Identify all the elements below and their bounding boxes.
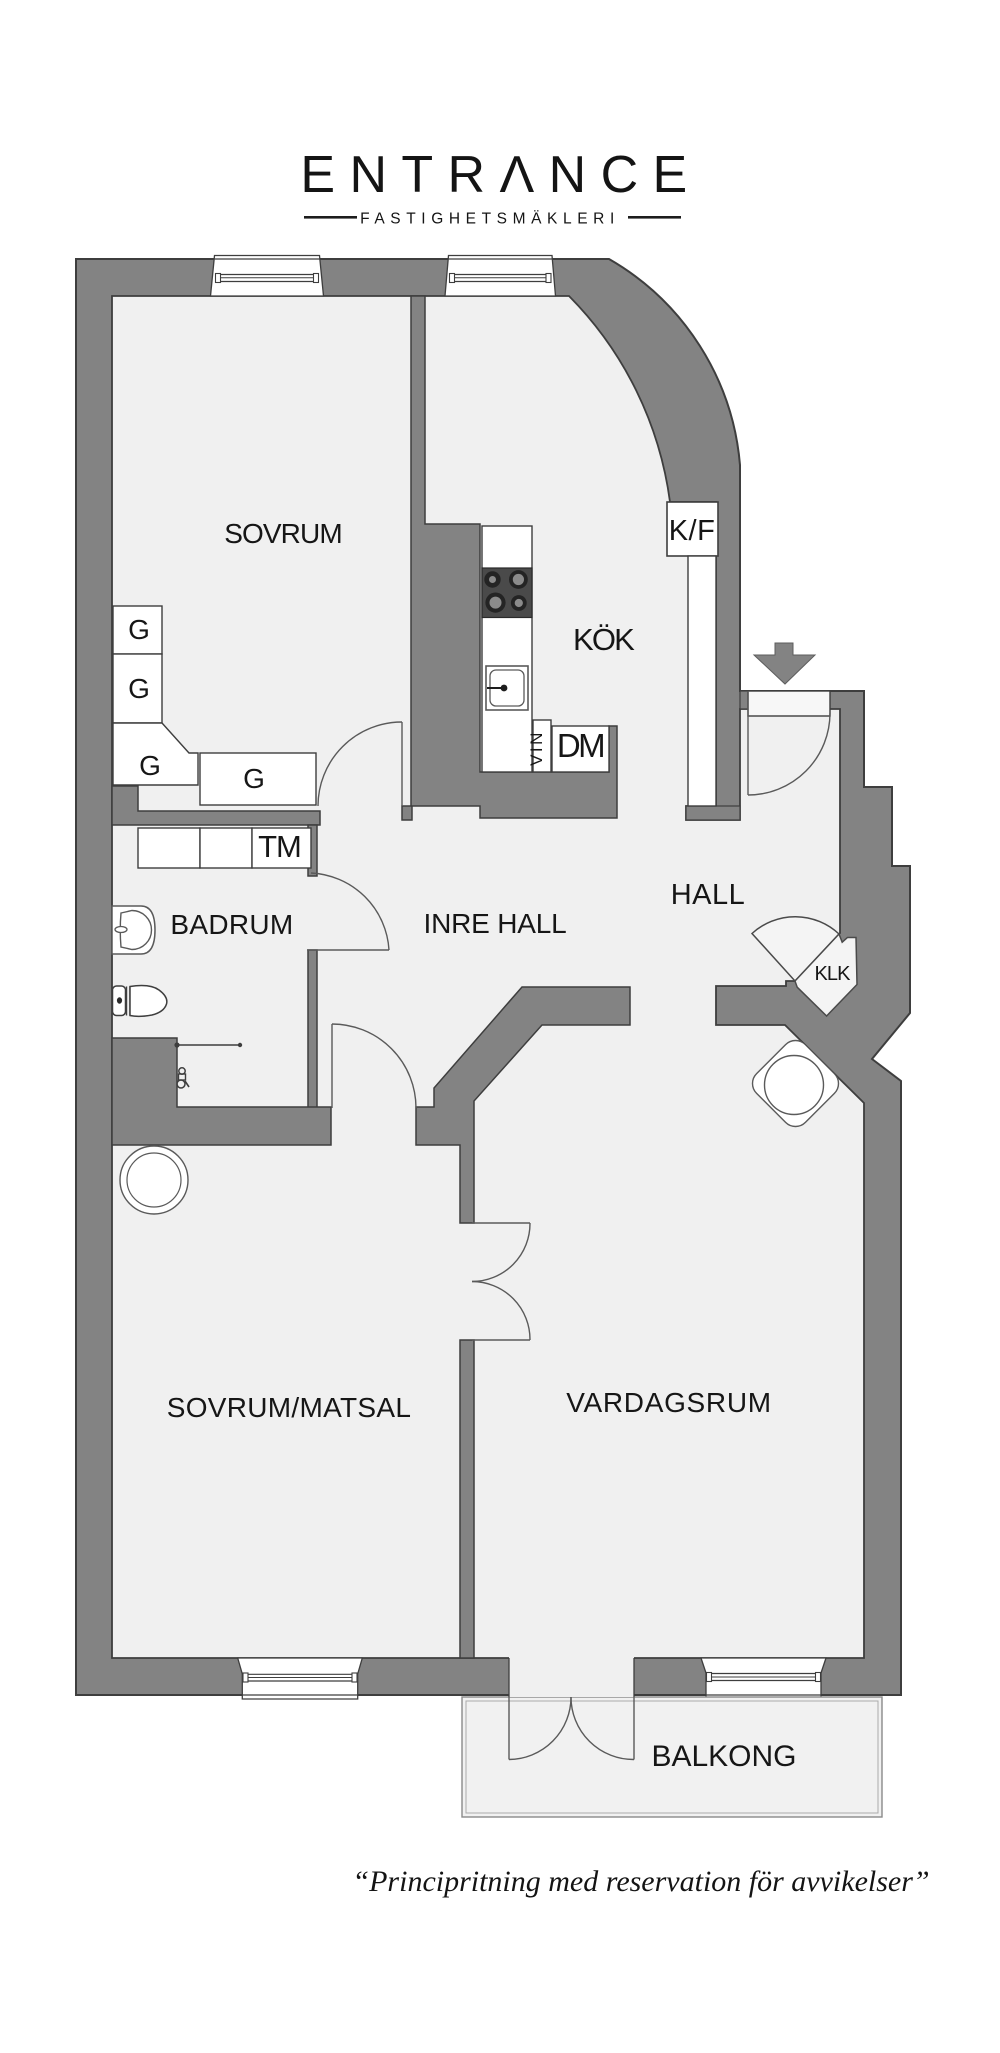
svg-text:KLK: KLK [814, 963, 851, 985]
svg-text:G: G [139, 750, 161, 781]
svg-text:SOVRUM/MATSAL: SOVRUM/MATSAL [167, 1392, 412, 1423]
svg-text:BADRUM: BADRUM [170, 909, 293, 940]
svg-text:DM: DM [557, 727, 603, 764]
svg-text:G: G [128, 614, 150, 645]
svg-text:VIN: VIN [527, 730, 546, 766]
svg-text:SOVRUM: SOVRUM [224, 518, 342, 549]
svg-text:FASTIGHETSMÄKLERI: FASTIGHETSMÄKLERI [360, 211, 620, 228]
svg-text:HALL: HALL [671, 879, 746, 911]
svg-text:G: G [128, 673, 150, 704]
svg-text:VARDAGSRUM: VARDAGSRUM [566, 1387, 772, 1418]
svg-text:K/F: K/F [669, 515, 716, 547]
svg-text:ENTRΛNCE: ENTRΛNCE [300, 146, 701, 204]
svg-text:G: G [243, 763, 265, 794]
svg-text:INRE HALL: INRE HALL [424, 908, 567, 939]
svg-text:TM: TM [258, 829, 301, 864]
svg-text:BALKONG: BALKONG [651, 1740, 796, 1773]
svg-text:“Principritning med reservatio: “Principritning med reservation för avvi… [352, 1865, 929, 1898]
svg-text:KÖK: KÖK [573, 622, 635, 657]
